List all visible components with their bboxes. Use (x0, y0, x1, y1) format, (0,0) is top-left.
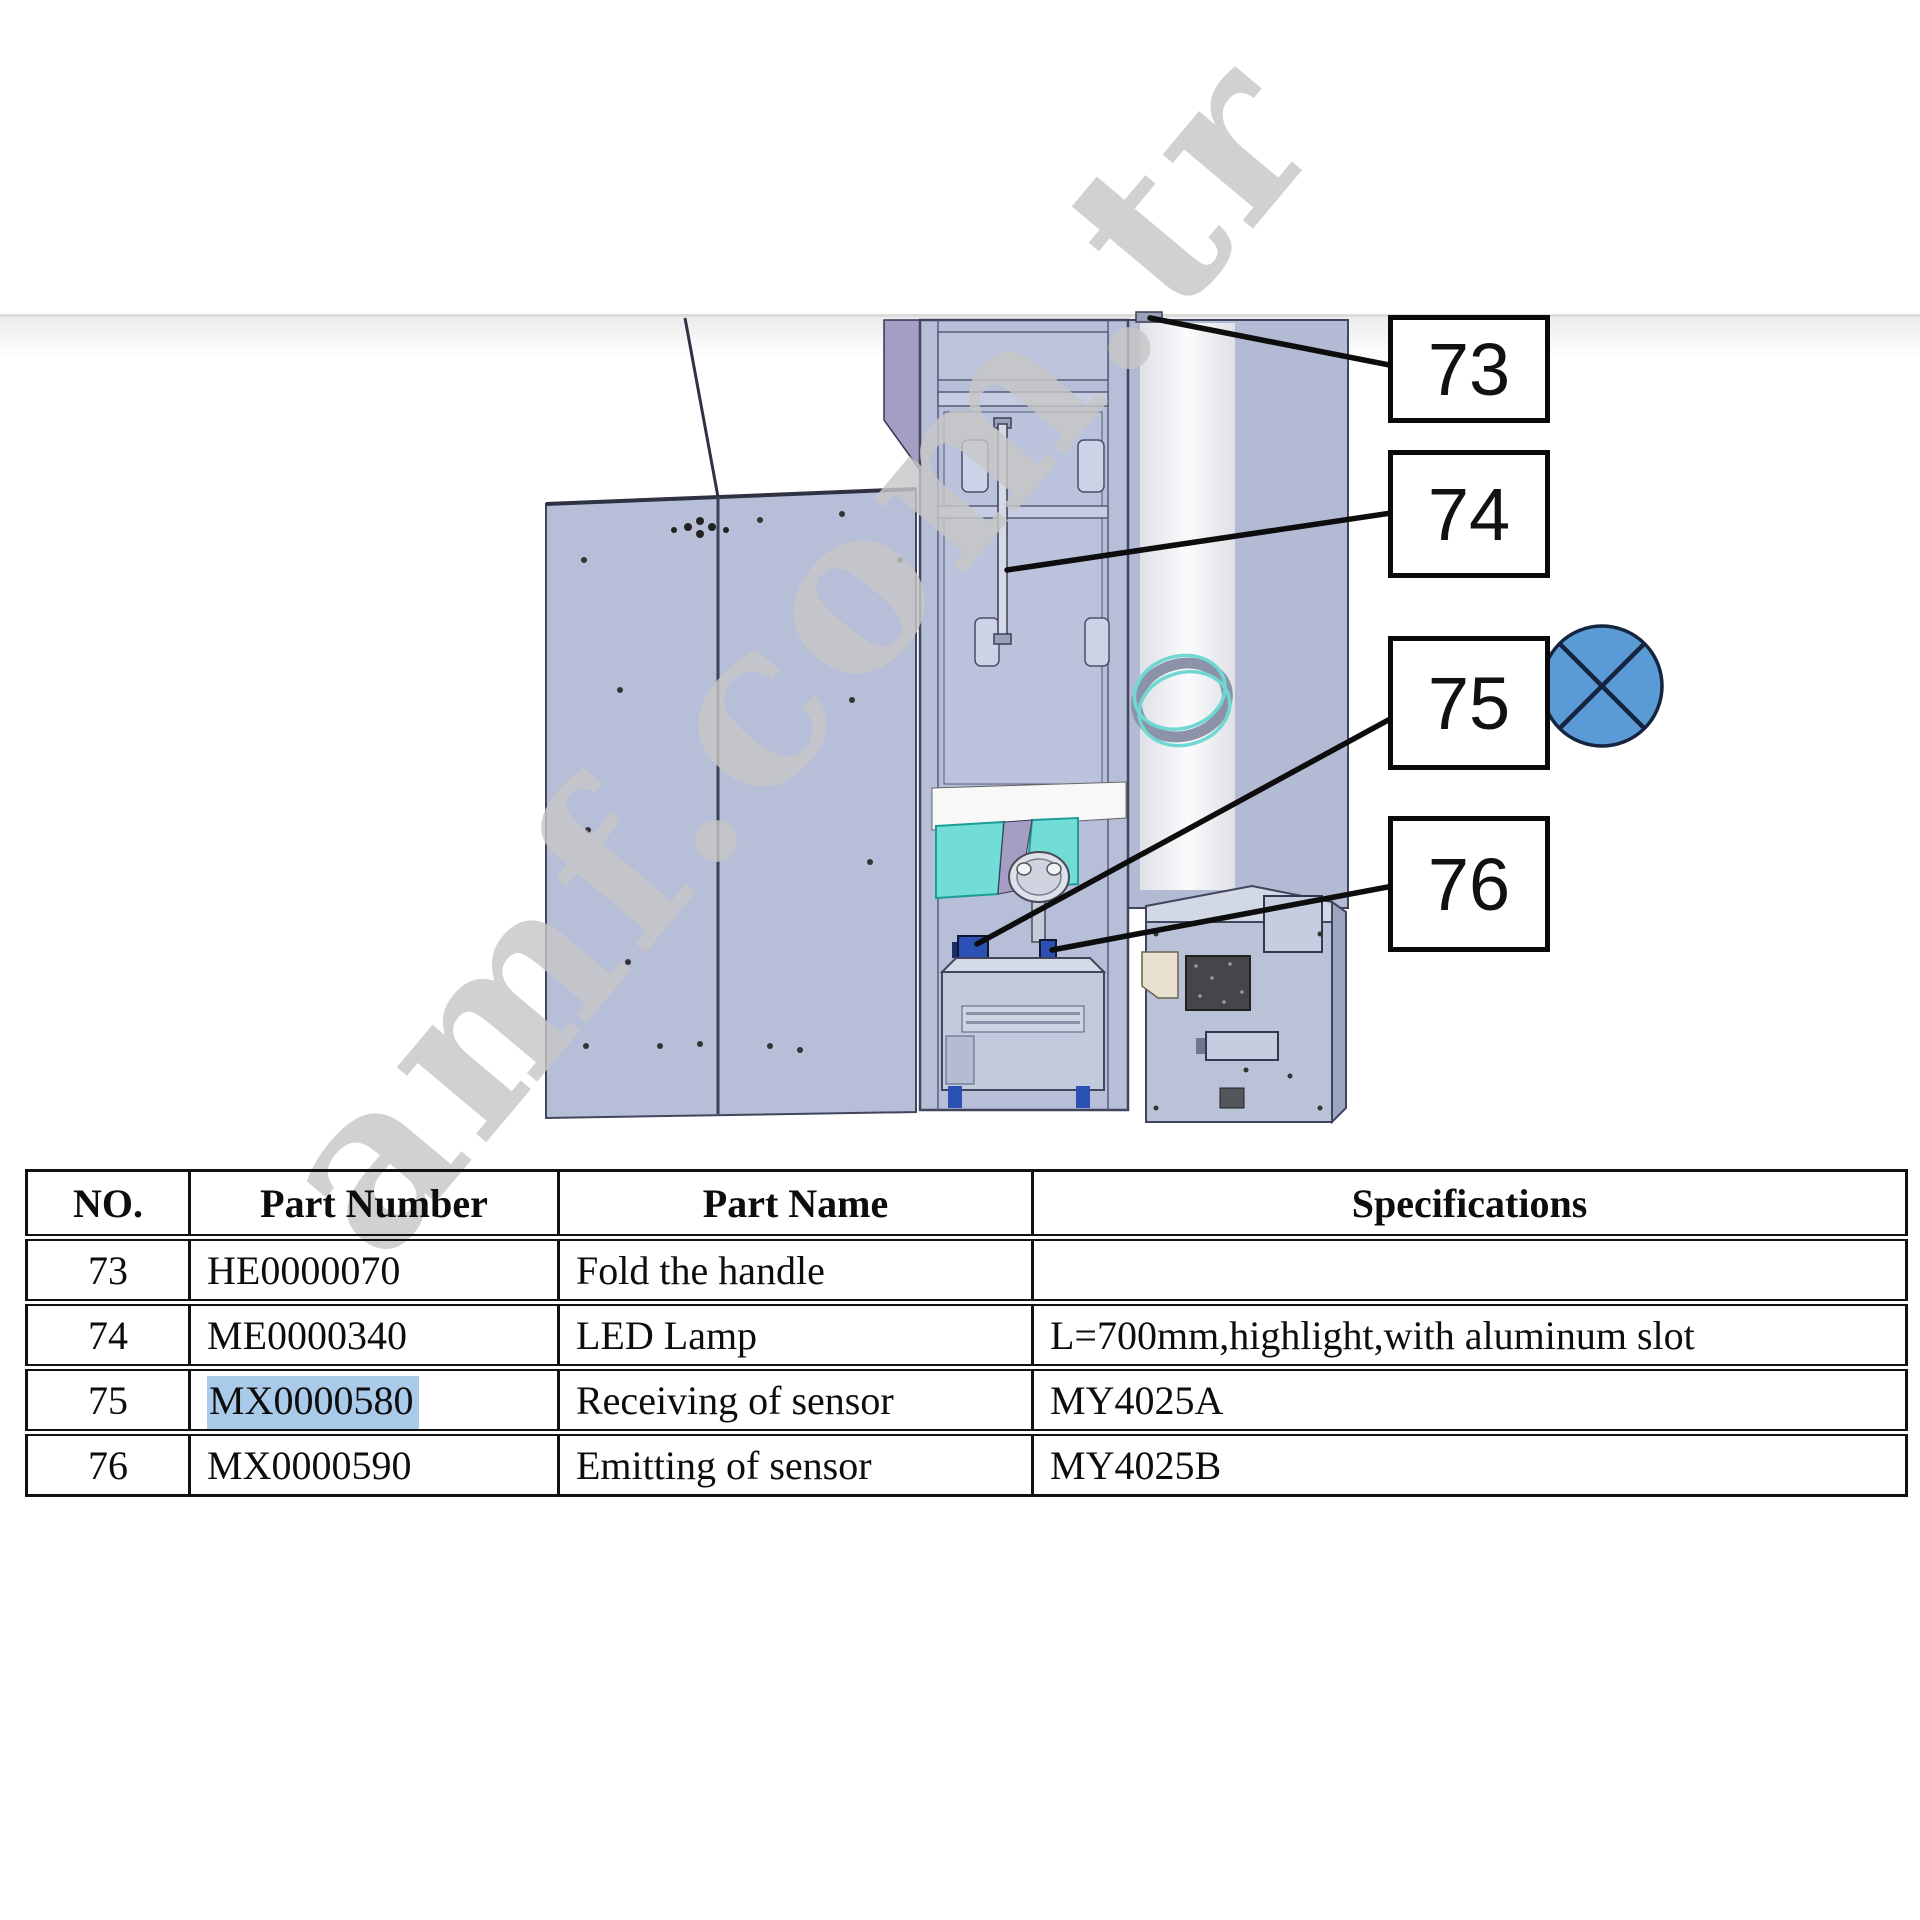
callout-label-75: 75 (1428, 661, 1510, 746)
table-row: 76 MX0000590 Emitting of sensor MY4025B (27, 1433, 1907, 1496)
callout-label-74: 74 (1428, 472, 1510, 557)
table-header-row: NO. Part Number Part Name Specifications (27, 1171, 1907, 1238)
cell-part-number: ME0000340 (190, 1303, 559, 1368)
cell-part-name: LED Lamp (559, 1303, 1033, 1368)
cell-no: 76 (27, 1433, 190, 1496)
header-specifications: Specifications (1033, 1171, 1907, 1238)
cell-no: 75 (27, 1368, 190, 1433)
cell-specifications: MY4025B (1033, 1433, 1907, 1496)
annotation-overlay (0, 0, 1920, 1920)
table-row: 75 MX0000580 Receiving of sensor MY4025A (27, 1368, 1907, 1433)
cell-part-name: Receiving of sensor (559, 1368, 1033, 1433)
cell-part-number: HE0000070 (190, 1238, 559, 1303)
header-no: NO. (27, 1171, 190, 1238)
header-part-name: Part Name (559, 1171, 1033, 1238)
cell-part-number: MX0000580 (190, 1368, 559, 1433)
leader-line-74 (1007, 508, 1425, 570)
cell-specifications: MY4025A (1033, 1368, 1907, 1433)
table-row: 74 ME0000340 LED Lamp L=700mm,highlight,… (27, 1303, 1907, 1368)
crossed-circle-icon (1542, 626, 1662, 746)
cell-part-name: Emitting of sensor (559, 1433, 1033, 1496)
header-part-number: Part Number (190, 1171, 559, 1238)
callout-label-73: 73 (1428, 327, 1510, 412)
leader-line-73 (1150, 318, 1425, 372)
leader-line-76 (1052, 880, 1425, 950)
cell-part-name: Fold the handle (559, 1238, 1033, 1303)
scanned-manual-page: amf.com.tr 73 74 75 76 NO. Part Numbe (0, 0, 1920, 1920)
callout-box-73: 73 (1388, 315, 1550, 423)
cell-no: 74 (27, 1303, 190, 1368)
callout-box-76: 76 (1388, 816, 1550, 952)
callout-label-76: 76 (1428, 842, 1510, 927)
cell-no: 73 (27, 1238, 190, 1303)
callout-box-75: 75 (1388, 636, 1550, 770)
table-row: 73 HE0000070 Fold the handle (27, 1238, 1907, 1303)
cell-specifications (1033, 1238, 1907, 1303)
parts-table: NO. Part Number Part Name Specifications… (25, 1169, 1908, 1497)
callout-box-74: 74 (1388, 450, 1550, 578)
leader-line-75 (977, 700, 1425, 944)
cell-specifications: L=700mm,highlight,with aluminum slot (1033, 1303, 1907, 1368)
cell-part-number: MX0000590 (190, 1433, 559, 1496)
highlighted-part-number: MX0000580 (207, 1376, 419, 1429)
